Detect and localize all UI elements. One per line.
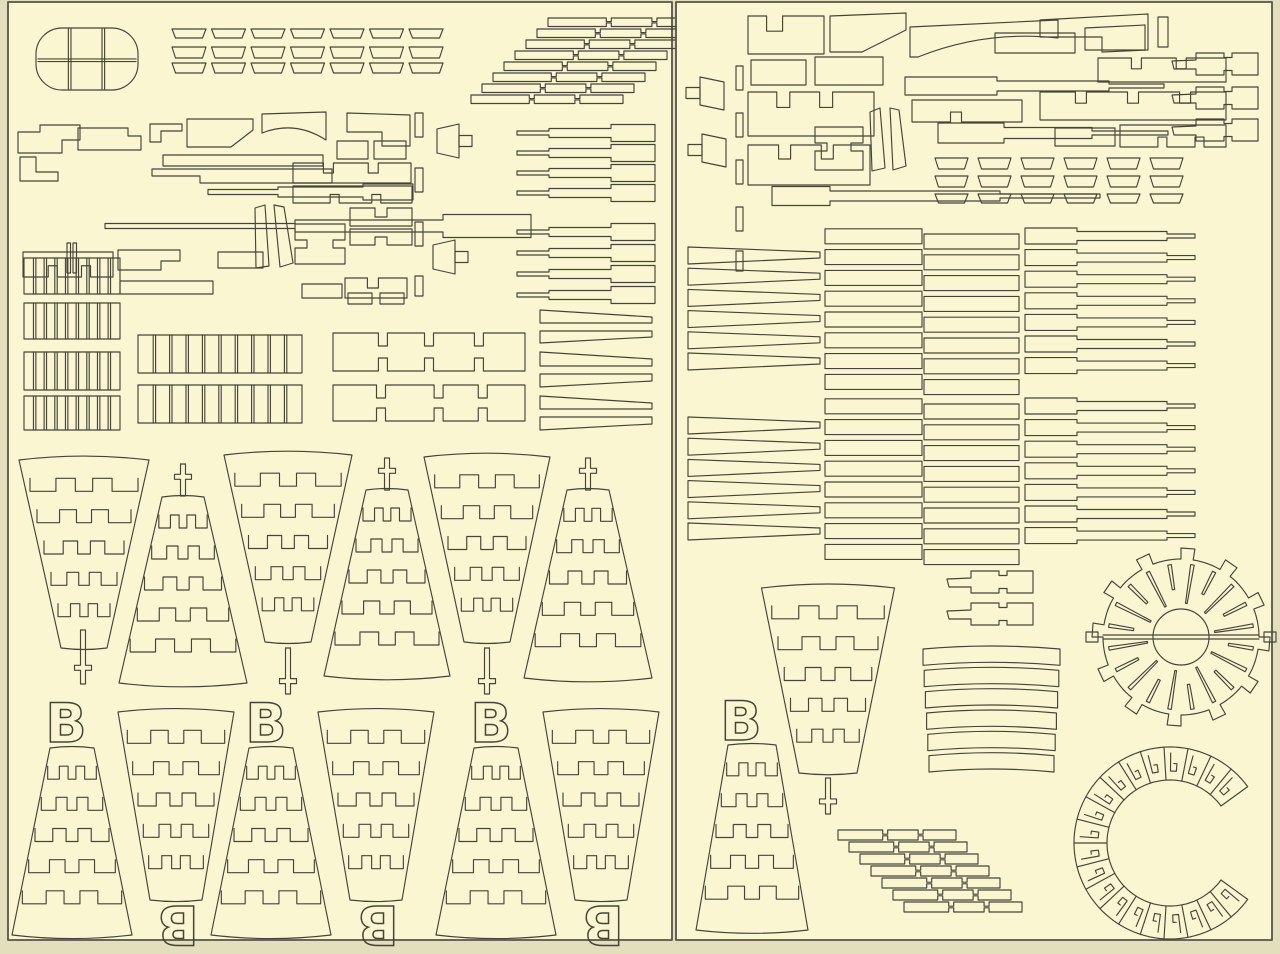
- wedge-label-b: B: [470, 692, 511, 755]
- pattern-sheet-canvas: BBBBBBB: [0, 0, 1280, 954]
- wedge-label-b: B: [45, 692, 86, 755]
- part-label: B: [470, 692, 511, 755]
- wedge-label-b: B: [357, 893, 398, 954]
- sheet-left-background: [8, 2, 672, 940]
- part-label: B: [245, 692, 286, 755]
- wedge-label-b: B: [582, 893, 623, 954]
- part-label: B: [157, 893, 198, 954]
- sheet-left: BBBBBB: [8, 2, 700, 954]
- sheet-right: B: [676, 2, 1276, 940]
- pattern-sheet-page: BBBBBBB: [0, 0, 1280, 954]
- wedge-label-b: B: [157, 893, 198, 954]
- part-label: B: [45, 692, 86, 755]
- part-label: B: [357, 893, 398, 954]
- part-label: B: [582, 893, 623, 954]
- wedge-label-b: B: [245, 692, 286, 755]
